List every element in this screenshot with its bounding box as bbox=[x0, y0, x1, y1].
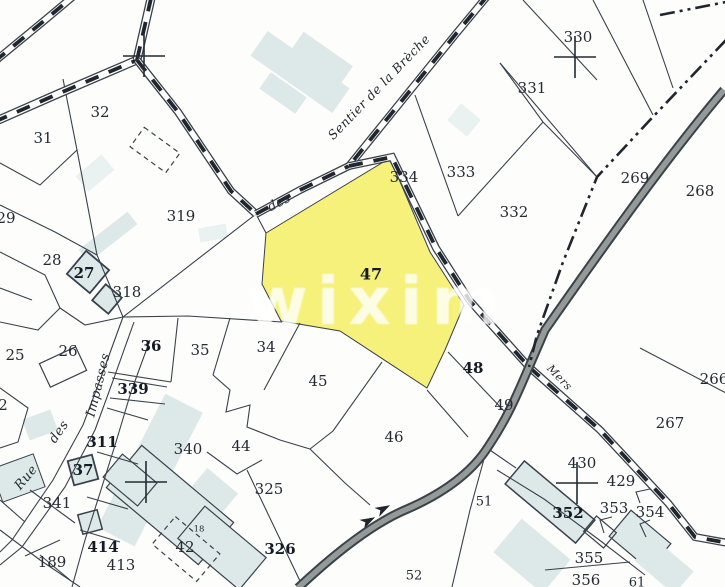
parcel-label-266: 266 bbox=[700, 370, 725, 388]
parcel-label-334: 334 bbox=[390, 168, 419, 186]
parcel-label-341: 341 bbox=[43, 494, 72, 512]
parcel-label-32: 32 bbox=[90, 103, 109, 121]
parcel-label-356: 356 bbox=[572, 571, 601, 587]
parcel-label-18: 18 bbox=[194, 525, 205, 535]
parcel-label-311: 311 bbox=[86, 433, 117, 451]
parcel-label-51: 51 bbox=[476, 495, 493, 510]
parcel-label-49: 49 bbox=[494, 396, 513, 414]
parcel-label-44: 44 bbox=[231, 437, 250, 455]
parcel-label-45: 45 bbox=[308, 372, 327, 390]
parcel-label-28: 28 bbox=[42, 251, 61, 269]
parcel-label-333: 333 bbox=[447, 163, 476, 181]
parcel-label-25: 25 bbox=[5, 346, 24, 364]
parcel-label-340: 340 bbox=[174, 440, 203, 458]
parcel-label-52: 52 bbox=[406, 569, 423, 584]
parcel-label-2: 2 bbox=[0, 396, 8, 414]
parcel-label-48: 48 bbox=[463, 359, 484, 377]
parcel-label-61: 61 bbox=[629, 576, 646, 587]
watermark-text: wixim bbox=[247, 263, 510, 340]
parcel-label-355: 355 bbox=[575, 549, 604, 567]
cadastral-map: 3231292827318319252636353445444634033931… bbox=[0, 0, 725, 587]
parcel-label-34: 34 bbox=[256, 338, 275, 356]
parcel-label-29: 29 bbox=[0, 209, 16, 227]
parcel-label-414: 414 bbox=[87, 538, 118, 556]
parcel-label-325: 325 bbox=[255, 480, 284, 498]
parcel-label-37: 37 bbox=[73, 461, 94, 479]
parcel-label-319: 319 bbox=[167, 207, 196, 225]
parcel-label-35: 35 bbox=[190, 341, 209, 359]
parcel-label-331: 331 bbox=[518, 79, 547, 97]
parcel-label-353: 353 bbox=[600, 499, 629, 517]
parcel-label-354: 354 bbox=[636, 503, 665, 521]
parcel-label-267: 267 bbox=[656, 414, 685, 432]
parcel-label-31: 31 bbox=[33, 129, 52, 147]
parcel-label-352: 352 bbox=[552, 504, 583, 522]
parcel-label-429: 429 bbox=[607, 472, 636, 490]
parcel-label-42: 42 bbox=[175, 538, 194, 556]
parcel-label-189: 189 bbox=[38, 553, 67, 571]
parcel-label-330: 330 bbox=[564, 28, 593, 46]
parcel-label-332: 332 bbox=[500, 203, 529, 221]
parcel-label-46: 46 bbox=[384, 428, 403, 446]
parcel-label-326: 326 bbox=[264, 540, 295, 558]
parcel-label-413: 413 bbox=[107, 556, 136, 574]
parcel-label-339: 339 bbox=[117, 380, 148, 398]
parcel-label-26: 26 bbox=[58, 342, 77, 360]
parcel-label-36: 36 bbox=[141, 337, 162, 355]
parcel-label-430: 430 bbox=[568, 454, 597, 472]
parcel-label-269: 269 bbox=[621, 169, 650, 187]
parcel-label-27: 27 bbox=[74, 264, 95, 282]
watermark: wixim bbox=[247, 263, 510, 340]
cadastral-map-svg: 3231292827318319252636353445444634033931… bbox=[0, 0, 725, 587]
parcel-label-318: 318 bbox=[113, 283, 142, 301]
parcel-label-268: 268 bbox=[686, 182, 715, 200]
